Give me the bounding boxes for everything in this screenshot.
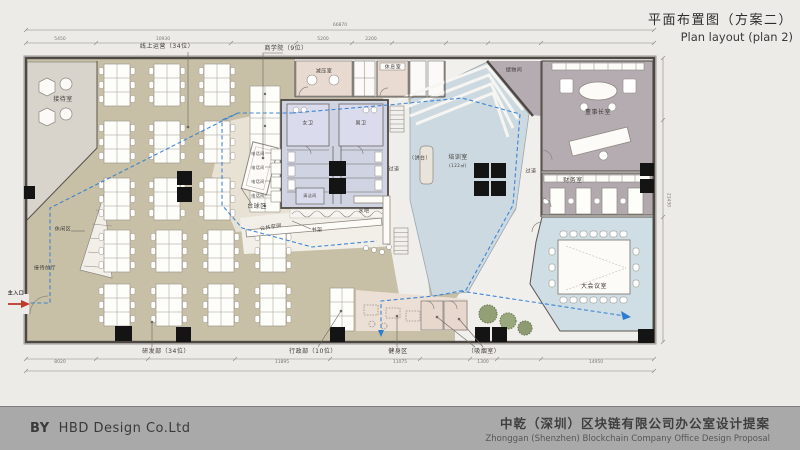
dim-bottom-2: 11895: [275, 361, 289, 366]
label-chairman: 董事长室: [585, 110, 611, 116]
dim-bottom-1: 8020: [54, 361, 65, 366]
label-phone-booth-4: 电话间: [251, 194, 265, 198]
label-rest-room: 休息室: [385, 66, 402, 71]
dim-top-3: 5200: [317, 38, 328, 43]
footer-author: BYHBD Design Co.Ltd: [30, 421, 191, 436]
label-bookshelf: 书架: [311, 229, 322, 234]
label-water-bar: 水吧: [358, 210, 369, 215]
label-reception: 接待室: [53, 97, 73, 103]
label-podium: （讲台）: [409, 157, 431, 162]
entrance-arrow: [8, 294, 30, 314]
label-leisure: 休闲区: [55, 228, 72, 233]
dim-top-overall: 66870: [333, 24, 347, 29]
label-training-area: (122㎡): [449, 164, 467, 168]
label-training: 培训室: [448, 155, 468, 161]
label-phone-booth-2: 电话间: [251, 166, 265, 170]
label-corridor-right: 过道: [525, 170, 536, 175]
label-billiards: 台球区: [247, 204, 267, 210]
label-womens-wc: 女卫: [302, 122, 313, 127]
proposal-title-en: Zhonggan (Shenzhen) Blockchain Company O…: [485, 434, 770, 444]
footer-proposal: 中乾（深圳）区块链有限公司办公室设计提案 Zhonggan (Shenzhen)…: [485, 413, 770, 444]
label-online-ops: 线上运营（34位）: [140, 44, 194, 50]
dim-top-1: 5450: [54, 38, 65, 43]
label-main-entrance: 主入口: [8, 292, 25, 297]
label-phone-booth-1: 电话间: [251, 152, 265, 156]
label-conference: 大会议室: [581, 284, 607, 290]
sheet-title-zh: 平面布置图（方案二）: [648, 9, 793, 28]
label-corridor-left: 过道: [388, 168, 399, 173]
label-smoking: （吸烟室）: [468, 349, 501, 355]
label-mens-wc: 男卫: [355, 122, 366, 127]
label-lobby: 接待前厅: [34, 267, 56, 272]
label-rnd: 研发部（34位）: [142, 349, 190, 355]
label-business-school: 商学院（9位）: [264, 46, 307, 52]
label-storage: 储物间: [506, 69, 523, 74]
footer-company: HBD Design Co.Ltd: [59, 421, 191, 436]
footer-bar: BYHBD Design Co.Ltd 中乾（深圳）区块链有限公司办公室设计提案…: [0, 406, 800, 450]
dim-top-4: 2200: [365, 38, 376, 43]
label-fitness: 健身区: [388, 349, 408, 355]
sheet-title-en: Plan layout (plan 2): [648, 30, 793, 44]
drawing-sheet: 接待室 线上运营（34位） 商学院（9位） 减压室 休息室 储物间 董事长室 财…: [0, 0, 800, 450]
dim-bottom-4: 1300: [477, 361, 488, 366]
dim-bottom-3: 11075: [393, 361, 407, 366]
label-phone-booth-3: 电话间: [251, 180, 265, 184]
label-admin: 行政部（10位）: [289, 349, 337, 355]
conference-furniture: [549, 231, 639, 303]
dim-bottom-5: 14950: [589, 361, 603, 366]
footer-by-label: BY: [30, 421, 50, 436]
training-room-furniture: [420, 146, 433, 184]
title-block: 平面布置图（方案二） Plan layout (plan 2): [648, 9, 793, 44]
label-finance: 财务室: [563, 178, 583, 184]
dim-right-1: 21430: [665, 193, 670, 207]
dim-top-2: 10930: [156, 38, 170, 43]
label-cleaning: 清洁间: [303, 194, 317, 198]
proposal-title-zh: 中乾（深圳）区块链有限公司办公室设计提案: [485, 413, 770, 432]
label-decompression: 减压室: [316, 70, 333, 75]
